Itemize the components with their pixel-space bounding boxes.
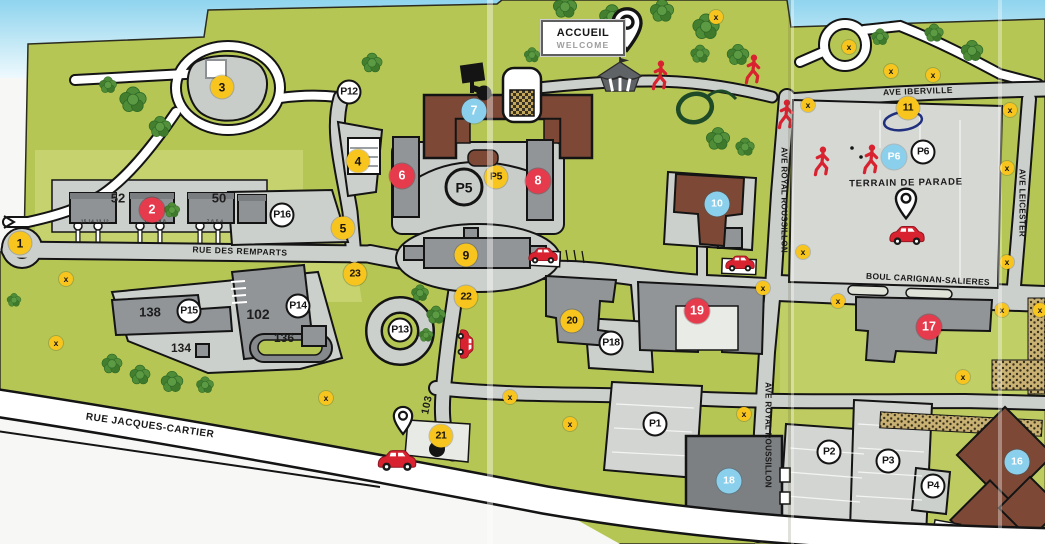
- tree-icon: [116, 84, 150, 123]
- car-icon: [526, 246, 560, 270]
- pedestrian-icon: [651, 60, 670, 97]
- car-icon: [887, 224, 927, 252]
- tree-icon: [146, 114, 174, 147]
- tree-icon: [869, 27, 891, 54]
- parking-marker-P18: P18: [599, 331, 624, 356]
- building-number-52: 52: [111, 191, 125, 206]
- tree-icon: [522, 46, 542, 71]
- parking-marker-P16: P16: [270, 203, 295, 228]
- x-marker: x: [1000, 161, 1014, 175]
- marker-20: 20: [561, 310, 584, 333]
- pedestrian-icon: [744, 54, 763, 91]
- x-marker: x: [737, 407, 751, 421]
- parking-marker-P2: P2: [817, 440, 842, 465]
- tree-icon: [417, 327, 435, 350]
- x-marker: x: [709, 10, 723, 24]
- accueil-sign: ACCUEIL WELCOME: [541, 20, 625, 56]
- tree-icon: [5, 292, 23, 315]
- x-marker: x: [563, 417, 577, 431]
- tree-icon: [688, 43, 712, 72]
- street-label-ave-leicester: AVE LEICESTER: [1018, 169, 1027, 237]
- marker-23: 23: [344, 263, 367, 286]
- x-marker: x: [956, 370, 970, 384]
- street-label-ave-royal-roussillon-south: AVE ROYAL ROUSSILLON: [764, 382, 773, 488]
- x-marker: x: [1003, 103, 1017, 117]
- circus-tent-icon: [595, 56, 645, 98]
- parking-ring-P5: P5: [445, 168, 484, 207]
- tree-icon: [359, 51, 385, 82]
- parking-marker-P4: P4: [921, 474, 946, 499]
- tree-icon: [958, 38, 986, 71]
- parking-marker-P12: P12: [337, 80, 362, 105]
- marker-18: 18: [717, 469, 742, 494]
- campus-map: RUE DES REMPARTSRUE JACQUES-CARTIERBOUL …: [0, 0, 1045, 544]
- marker-8: 8: [526, 169, 551, 194]
- street-label-boul-carignan-salieres: BOUL CARIGNAN-SALIERES: [866, 271, 990, 287]
- x-marker: x: [801, 98, 815, 112]
- street-label-rue-des-remparts: RUE DES REMPARTS: [192, 244, 288, 257]
- x-marker: x: [49, 336, 63, 350]
- marker-6: 6: [390, 164, 415, 189]
- building-number-50: 50: [212, 191, 226, 206]
- marker-2: 2: [140, 198, 165, 223]
- marker-11: 11: [897, 97, 920, 120]
- x-marker: x: [59, 272, 73, 286]
- street-label-route-103: 103: [419, 394, 435, 415]
- lot-numbers: 15 14 13 12: [81, 219, 109, 224]
- x-marker: x: [831, 294, 845, 308]
- marker-21: 21: [430, 425, 453, 448]
- street-label-rue-jacques-cartier: RUE JACQUES-CARTIER: [85, 412, 215, 441]
- tree-icon: [158, 369, 186, 402]
- marker-16: 16: [1005, 450, 1030, 475]
- marker-P5: P5: [485, 166, 508, 189]
- x-marker: x: [926, 68, 940, 82]
- car-icon: [451, 327, 475, 361]
- marker-3: 3: [211, 76, 234, 99]
- x-marker: x: [503, 390, 517, 404]
- x-marker: x: [756, 281, 770, 295]
- street-label-terrain-de-parade: TERRAIN DE PARADE: [849, 177, 963, 190]
- tree-icon: [127, 363, 153, 394]
- marker-19: 19: [685, 299, 710, 324]
- x-marker: x: [1000, 255, 1014, 269]
- marker-9: 9: [455, 244, 478, 267]
- tree-icon: [647, 0, 677, 32]
- building-number-138: 138: [139, 305, 161, 320]
- x-marker: x: [319, 391, 333, 405]
- street-label-ave-iberville: AVE IBERVILLE: [883, 85, 953, 97]
- marker-P6: P6: [882, 145, 907, 170]
- map-overlay: RUE DES REMPARTSRUE JACQUES-CARTIERBOUL …: [0, 0, 1045, 544]
- car-icon: [723, 254, 757, 278]
- tree-icon: [922, 22, 946, 51]
- marker-7: 7: [462, 99, 487, 124]
- location-pin-icon: [393, 406, 414, 441]
- street-label-ave-royal-roussillon-north: AVE ROYAL ROUSSILLON: [780, 147, 789, 253]
- tree-icon: [99, 352, 125, 383]
- pedestrian-icon: [813, 146, 832, 183]
- car-icon: [375, 448, 419, 478]
- accueil-title: ACCUEIL: [545, 27, 621, 39]
- marker-17: 17: [917, 315, 942, 340]
- marker-4: 4: [347, 150, 370, 173]
- parking-marker-P1: P1: [643, 412, 668, 437]
- lot-numbers: 7 6 5 4: [207, 219, 224, 224]
- tree-icon: [97, 75, 119, 102]
- parking-marker-P6: P6: [911, 140, 936, 165]
- x-marker: x: [842, 40, 856, 54]
- marker-10: 10: [705, 192, 730, 217]
- marker-22: 22: [455, 286, 478, 309]
- marker-5: 5: [332, 217, 355, 240]
- pedestrian-icon: [777, 99, 796, 136]
- parking-marker-P15: P15: [177, 299, 202, 324]
- tree-icon: [194, 375, 216, 402]
- parking-marker-P14: P14: [286, 294, 311, 319]
- building-number-134: 134: [171, 341, 191, 355]
- building-number-136: 136: [274, 331, 294, 345]
- parking-marker-P13: P13: [388, 318, 413, 343]
- building-number-102: 102: [246, 306, 269, 322]
- tree-icon: [733, 136, 757, 165]
- location-pin-icon: [895, 187, 918, 225]
- tree-icon: [703, 125, 733, 160]
- x-marker: x: [1033, 303, 1045, 317]
- pedestrian-icon: [862, 144, 881, 181]
- x-marker: x: [796, 245, 810, 259]
- x-marker: x: [995, 303, 1009, 317]
- parking-marker-P3: P3: [876, 449, 901, 474]
- welcome-subtitle: WELCOME: [545, 40, 621, 50]
- x-marker: x: [884, 64, 898, 78]
- marker-1: 1: [9, 232, 32, 255]
